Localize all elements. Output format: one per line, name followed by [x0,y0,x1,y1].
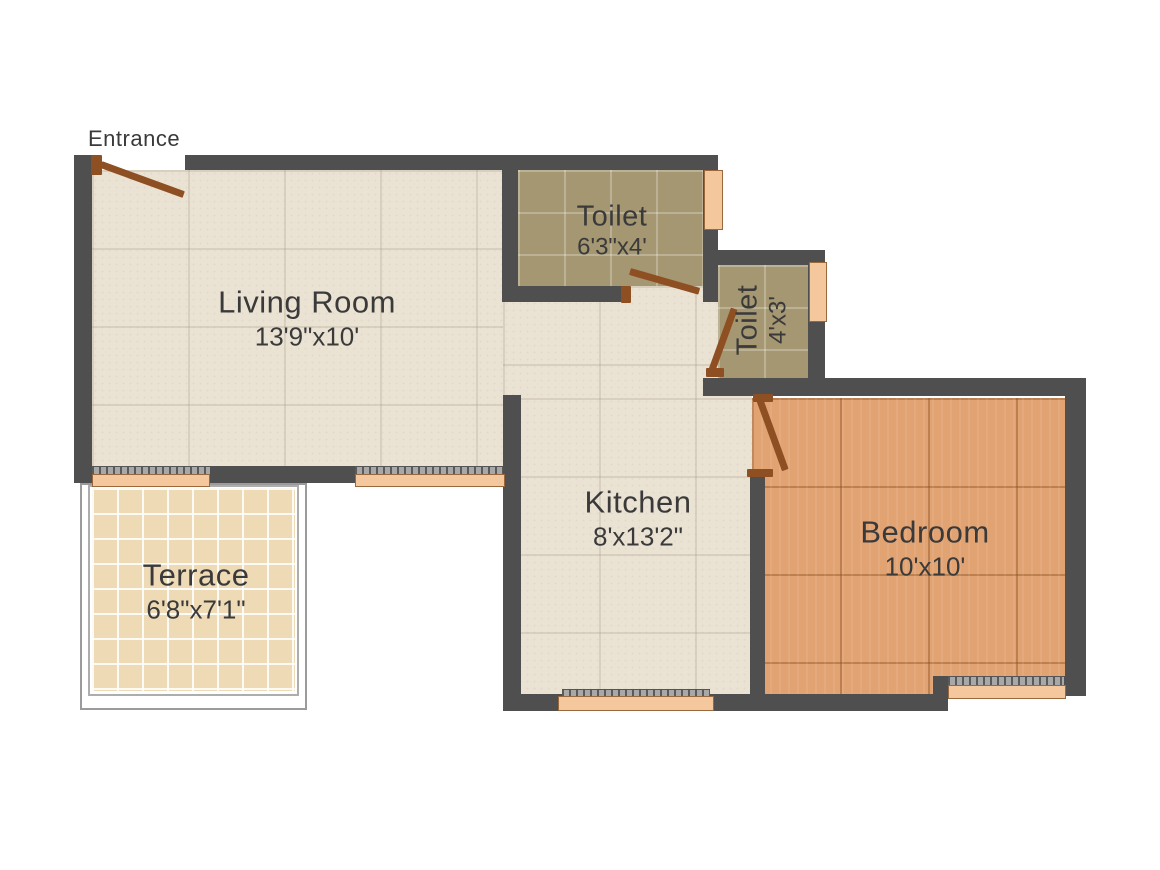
kitchen-window [558,696,714,711]
living-window-left [92,474,210,487]
terrace-name: Terrace [143,557,250,594]
toilet-main-dimensions: 6'3"x4' [577,234,648,262]
wall-toilet-main-left [502,155,518,302]
wall-toilet-small-top [703,250,825,265]
wall-left [74,155,92,470]
toilet-main-door-hinge [621,286,631,303]
floor-plan: Entrance Living Room 13'9"x10' Toilet 6'… [0,0,1160,870]
living-room-label: Living Room 13'9"x10' [218,284,396,351]
wall-toilet-main-bottom [502,286,628,302]
living-window-right [355,474,505,487]
toilet-small-label: Toilet 4'x3' [731,285,794,356]
kitchen-dimensions: 8'x13'2" [585,521,692,552]
toilet-small-name: Toilet [731,285,765,356]
kitchen-label: Kitchen 8'x13'2" [585,484,692,551]
toilet-small-dimensions: 4'x3' [765,285,793,356]
living-room-name: Living Room [218,284,396,321]
wall-top [185,155,718,170]
bedroom-name: Bedroom [860,514,989,551]
wall-bedroom-right [1065,378,1086,694]
bedroom-dimensions: 10'x10' [860,551,989,582]
bedroom-door-stop [747,469,773,477]
terrace-label: Terrace 6'8"x7'1" [143,557,250,624]
entrance-label: Entrance [88,126,180,152]
bedroom-label: Bedroom 10'x10' [860,514,989,581]
toilet-main-window [704,170,723,230]
terrace-dimensions: 6'8"x7'1" [143,594,250,625]
bedroom-window [948,685,1066,699]
living-room-dimensions: 13'9"x10' [218,321,396,352]
wall-kitchen-bedroom-divider [750,473,765,711]
toilet-small-window [809,262,827,322]
kitchen-name: Kitchen [585,484,692,521]
toilet-main-label: Toilet 6'3"x4' [577,200,648,263]
wall-kitchen-left [503,395,521,711]
toilet-main-name: Toilet [577,200,648,234]
